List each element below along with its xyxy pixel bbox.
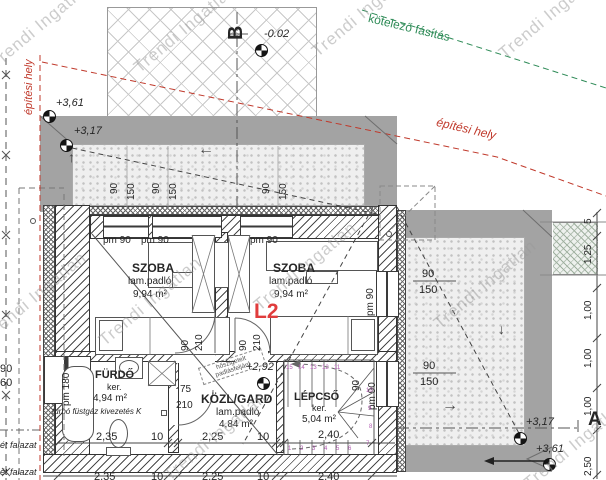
dim-chain-value: 1,25 — [584, 245, 594, 264]
right-terrace-parapet-bottom — [397, 446, 552, 472]
step-number: 14 — [298, 365, 305, 371]
window-width-label: 90 — [423, 361, 435, 372]
sill-label: pm 90 — [103, 236, 131, 246]
bed-left-pillow — [99, 320, 123, 351]
elevation-terrace-top: -0.02 — [264, 29, 289, 40]
window-width-label: 90 — [110, 183, 120, 194]
window-width-label: 90 — [422, 269, 434, 280]
bed-right-pillow — [351, 319, 375, 351]
parapet-mid-strip — [365, 116, 397, 212]
step-number: 1 — [288, 446, 291, 452]
survey-point-icon — [543, 458, 556, 471]
room-floor-bathroom: ker. — [107, 383, 122, 392]
opening-width-rotated: 90 — [352, 380, 362, 391]
step-number: 13 — [310, 365, 317, 371]
right-wall — [378, 205, 397, 472]
step-number: 10 — [366, 388, 373, 394]
dim-partition: 10 — [151, 432, 163, 443]
step-number: 7 — [366, 441, 369, 447]
stair-wall — [276, 361, 284, 453]
room-floor-bedroom-left: lam.padló — [128, 277, 171, 287]
step-number: 5 — [336, 446, 339, 452]
left-wall-insulation — [43, 205, 55, 472]
section-marker-b: B — [226, 26, 246, 40]
room-area-bedroom-left: 9,94 m² — [133, 290, 167, 300]
survey-point-icon — [255, 44, 268, 57]
dim-bath-width: 2,35 — [94, 472, 115, 480]
right-arrow-icon: → — [442, 398, 458, 414]
dim-partition: 10 — [151, 472, 163, 480]
dim-hall-width: 2,25 — [202, 472, 223, 480]
wardrobe-right — [228, 235, 250, 313]
room-name-staircase: LÉPCSŐ — [294, 392, 339, 403]
room-name-bathroom: FÜRDŐ — [95, 370, 134, 381]
tree-line-label: kötelező fásítás — [367, 12, 451, 43]
building-line-label-diagonal: építési hely — [435, 116, 497, 141]
margin-cut-note: ét falazat — [0, 468, 37, 477]
door-height-label: 210 — [253, 334, 263, 351]
door-width-label: 90 — [239, 340, 249, 351]
upper-deck-crosshatch — [107, 7, 317, 118]
right-terrace-parapet-right — [525, 237, 552, 446]
room-floor-staircase: ker. — [312, 404, 327, 413]
door-width-label: 90 — [181, 340, 191, 351]
survey-point-icon — [257, 377, 270, 390]
up-arrow-icon: ↑ — [68, 150, 75, 164]
window-height-label: 150 — [419, 285, 437, 296]
step-number: 4 — [324, 446, 327, 452]
margin-cut-note: ét falazat — [0, 441, 37, 450]
sill-label: pm 90 — [141, 236, 169, 246]
building-line-label-vertical: építési hely — [24, 59, 35, 115]
dim-partition: 10 — [257, 432, 269, 443]
dim-hall-width: 2,25 — [202, 432, 223, 443]
floor-label: L2 — [254, 301, 279, 322]
drain-point-left — [31, 219, 36, 224]
watermark: Trendi Ingatlan — [495, 0, 606, 63]
watermark: Trendi Ingatlan — [0, 0, 97, 73]
room-area-bathroom: 4,94 m² — [93, 394, 127, 404]
window-height-label: 150 — [420, 377, 438, 388]
elevation-terrace-right: +3,17 — [526, 417, 554, 428]
room-floor-bedroom-right: lam.padló — [269, 277, 312, 287]
dim-chain-value: 1,00 — [584, 301, 594, 320]
down-arrow-icon: ↓ — [498, 322, 505, 336]
toilet-tank — [106, 447, 131, 456]
elevation-parapet-right-bottom: +3,61 — [536, 444, 564, 455]
right-wall-insulation — [397, 210, 406, 472]
dim-stair-width: 2,40 — [318, 430, 339, 441]
window-height-label: 150 — [169, 183, 179, 200]
step-number: 6 — [348, 446, 351, 452]
room-floor-hallway: lam.padló — [216, 408, 259, 418]
fence-marks — [2, 71, 10, 476]
step-number: 9 — [368, 406, 371, 412]
right-terrace-parapet-top — [397, 210, 552, 237]
elevation-parapet-left-top: +3,61 — [56, 98, 84, 109]
margin-cut-value: 90 — [0, 364, 12, 375]
flue-symbol — [161, 410, 167, 416]
dim-stair-width: 2,40 — [318, 472, 339, 480]
survey-point-icon — [43, 110, 56, 123]
window-height-label: 150 — [279, 183, 289, 200]
bath-door-height-label: 210 — [176, 401, 193, 411]
dim-partition: 10 — [257, 472, 269, 480]
window-width-label: 90 — [152, 183, 162, 194]
room-area-hallway: 4,84 m² — [219, 420, 253, 430]
top-wall-insulation — [43, 206, 397, 215]
sill-label-bath: pm 180 — [62, 373, 72, 406]
room-name-bedroom-left: SZOBA — [132, 262, 174, 274]
room-name-hallway: KÖZL/GARD — [201, 393, 272, 405]
dim-chain-value: 1,00 — [584, 397, 594, 416]
dim-bath-width: 2,35 — [96, 432, 117, 443]
step-number: 12 — [322, 365, 329, 371]
survey-point-icon — [514, 432, 527, 445]
bedroom-right-side-window — [376, 271, 399, 317]
floor-plan-canvas: Trendi Ingatlan Trendi Ingatlan Trendi I… — [0, 0, 606, 480]
dim-chain-value: 5 — [584, 218, 594, 224]
left-arrow-icon: ← — [198, 142, 214, 158]
wardrobe-left — [192, 235, 215, 313]
window-height-label: 150 — [127, 183, 137, 200]
step-number: 11 — [334, 365, 340, 371]
bath-door-width-label: 75 — [180, 385, 191, 395]
step-number: 15 — [286, 365, 293, 371]
sill-label-rotated: pm 90 — [366, 288, 376, 316]
elevation-terrace-left: +3,17 — [74, 126, 102, 137]
sill-label: pm 90 — [250, 236, 278, 246]
margin-cut-value: 60 — [0, 378, 12, 389]
step-number: 8 — [369, 424, 372, 430]
door-height-label: 210 — [195, 334, 205, 351]
step-number: 3 — [312, 446, 315, 452]
staircase-window — [376, 361, 399, 407]
step-number: 2 — [300, 446, 303, 452]
window-width-label: 90 — [262, 183, 272, 194]
room-name-bedroom-right: SZOBA — [273, 262, 315, 274]
flue-note: turbó füstgáz kivezetés K — [52, 408, 141, 416]
room-area-staircase: 5,04 m² — [302, 415, 336, 425]
boiler — [148, 361, 176, 386]
top-terrace-floor — [72, 144, 365, 206]
dim-chain-value: 1,00 — [584, 349, 594, 368]
dim-chain-value: 2,50 — [584, 457, 594, 476]
room-area-bedroom-right: 9,94 m² — [274, 290, 308, 300]
